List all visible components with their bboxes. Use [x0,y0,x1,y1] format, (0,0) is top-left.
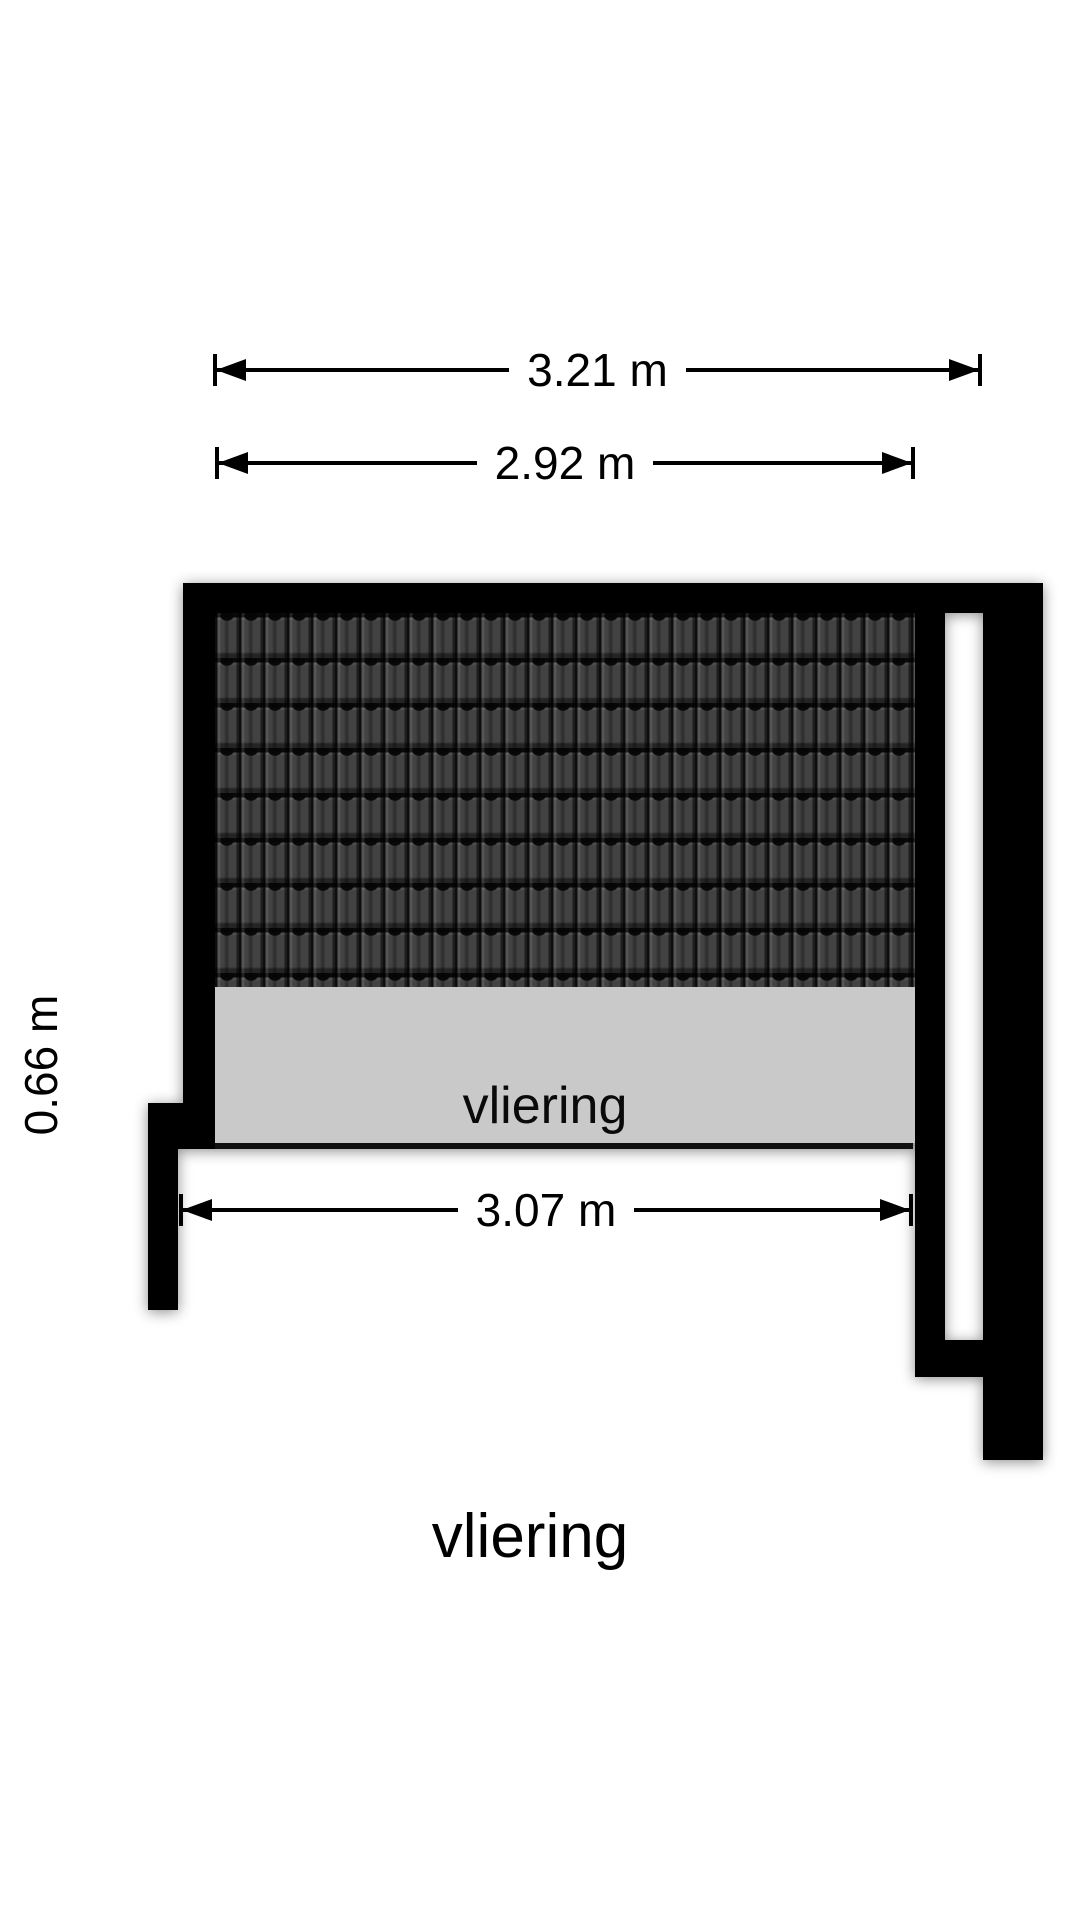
dimension-inner-width: 2.92 m [215,440,915,486]
dimension-value: 2.92 m [477,440,654,486]
wall-left-lower [148,1149,178,1310]
wall-right-outer [983,613,1043,1460]
plan-title: vliering [230,1506,830,1568]
wall-bottom-right-connector [915,1340,1043,1377]
arrow-right-icon [882,452,912,474]
wall-right-inner [915,613,945,1377]
wall-top [183,583,1043,613]
dimension-floor-depth-label: 0.66 m [18,955,64,1175]
roof-tile-area [215,613,915,987]
arrow-left-icon [216,359,246,381]
room-label: vliering [215,1080,875,1132]
dimension-value: 3.07 m [458,1187,635,1233]
wall-left-step [148,1103,215,1149]
wall-left [183,583,215,1110]
arrow-right-icon [880,1199,910,1221]
dimension-overall-width: 3.21 m [213,347,982,393]
arrow-left-icon [218,452,248,474]
floorplan: vliering [0,0,1080,1920]
dimension-floor-width: 3.07 m [179,1187,913,1233]
dimension-value: 3.21 m [509,347,686,393]
floor-bottom-edge [178,1143,913,1149]
arrow-left-icon [182,1199,212,1221]
arrow-right-icon [949,359,979,381]
